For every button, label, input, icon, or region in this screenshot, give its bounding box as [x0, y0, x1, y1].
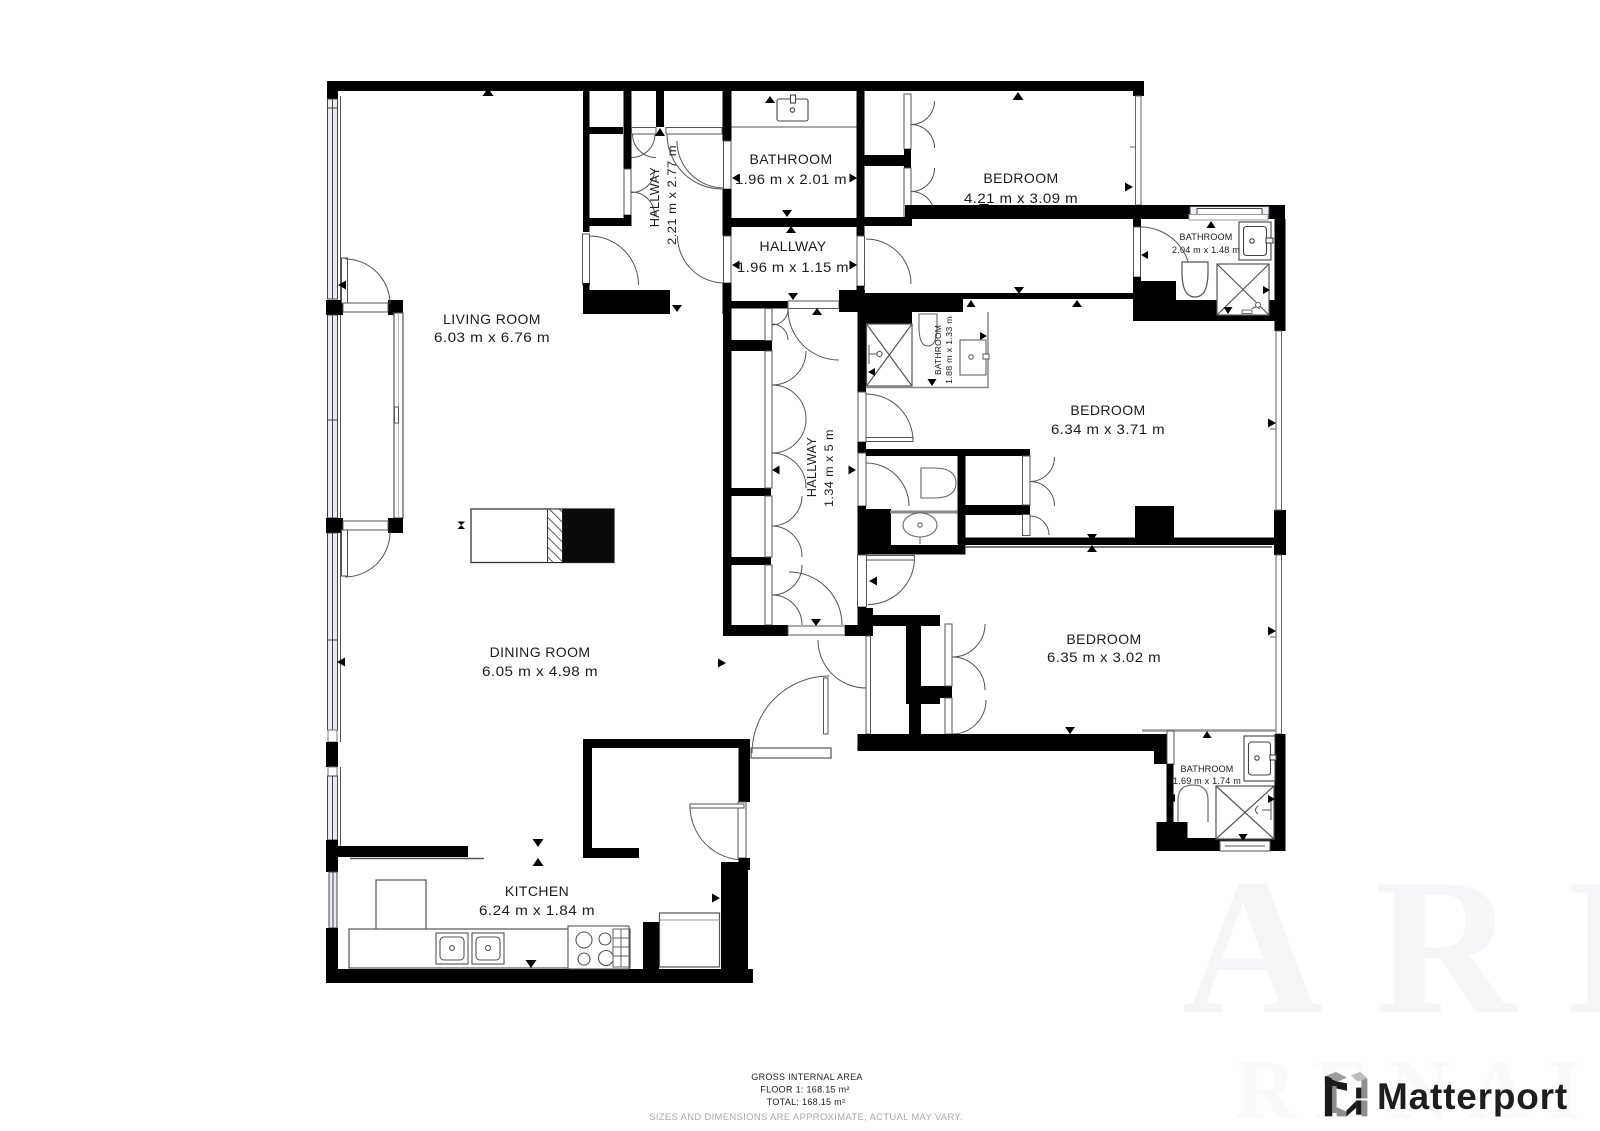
svg-text:1.96 m x 2.01 m: 1.96 m x 2.01 m	[735, 171, 847, 187]
svg-text:4.21 m x 3.09 m: 4.21 m x 3.09 m	[964, 190, 1078, 206]
svg-text:FLOOR 1: 168.15 m²: FLOOR 1: 168.15 m²	[760, 1085, 849, 1095]
svg-text:HALLWAY: HALLWAY	[805, 437, 819, 497]
svg-text:6.03 m x 6.76 m: 6.03 m x 6.76 m	[434, 329, 550, 345]
svg-text:HALLWAY: HALLWAY	[759, 238, 826, 254]
svg-text:BATHROOM: BATHROOM	[1180, 232, 1233, 242]
svg-text:6.24 m x 1.84 m: 6.24 m x 1.84 m	[479, 902, 595, 918]
svg-text:GROSS INTERNAL AREA: GROSS INTERNAL AREA	[751, 1072, 862, 1082]
svg-text:6.35 m x 3.02 m: 6.35 m x 3.02 m	[1047, 649, 1161, 665]
svg-text:SIZES AND DIMENSIONS ARE APPRO: SIZES AND DIMENSIONS ARE APPROXIMATE, AC…	[649, 1112, 963, 1123]
svg-text:6.05 m x 4.98 m: 6.05 m x 4.98 m	[482, 663, 598, 679]
svg-text:BEDROOM: BEDROOM	[1066, 631, 1141, 647]
svg-text:BATHROOM: BATHROOM	[1181, 764, 1234, 774]
svg-text:KITCHEN: KITCHEN	[505, 883, 569, 899]
svg-text:1.69 m x 1.74 m: 1.69 m x 1.74 m	[1173, 776, 1241, 786]
svg-text:1.34 m x 5 m: 1.34 m x 5 m	[822, 429, 836, 507]
svg-text:1.96 m x 1.15 m: 1.96 m x 1.15 m	[737, 259, 849, 275]
svg-text:DINING ROOM: DINING ROOM	[490, 644, 591, 660]
svg-text:6.34 m x 3.71 m: 6.34 m x 3.71 m	[1051, 421, 1165, 437]
svg-text:BATHROOM: BATHROOM	[933, 325, 943, 375]
svg-text:HALLWAY: HALLWAY	[648, 167, 662, 227]
svg-text:LIVING ROOM: LIVING ROOM	[443, 311, 541, 327]
svg-text:BEDROOM: BEDROOM	[983, 170, 1058, 186]
svg-text:BEDROOM: BEDROOM	[1070, 402, 1145, 418]
svg-text:2.04 m x 1.48 m: 2.04 m x 1.48 m	[1172, 245, 1240, 255]
svg-text:TOTAL: 168.15 m²: TOTAL: 168.15 m²	[767, 1097, 846, 1107]
svg-text:ARE: ARE	[1182, 839, 1600, 1055]
svg-text:1.88 m x 1.33 m: 1.88 m x 1.33 m	[944, 316, 954, 384]
svg-text:2.21 m x 2.77 m: 2.21 m x 2.77 m	[665, 145, 679, 245]
svg-text:Matterport: Matterport	[1377, 1076, 1568, 1117]
svg-text:BATHROOM: BATHROOM	[749, 151, 832, 167]
